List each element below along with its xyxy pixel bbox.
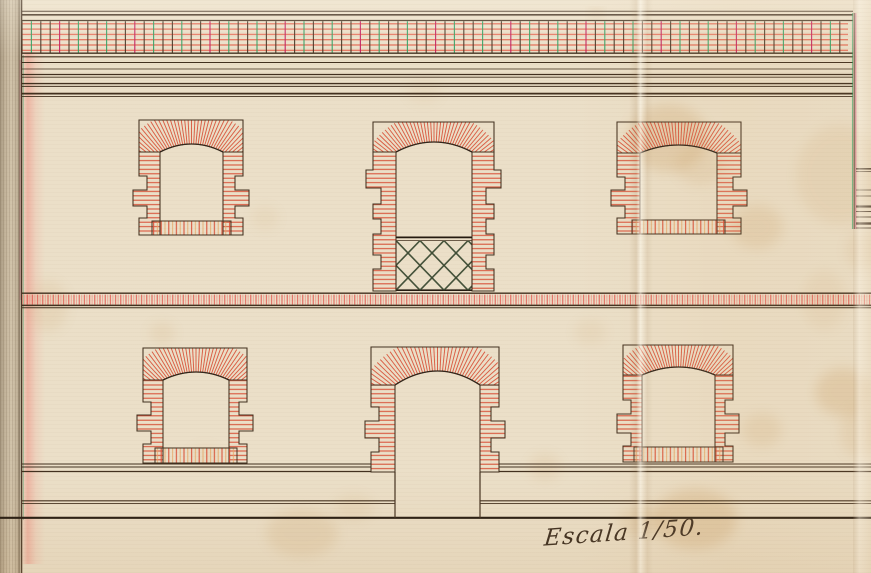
cornice [22,11,853,96]
opening-window-bottom-right [608,335,748,462]
opening-window-top-left [119,110,263,235]
opening-balcony-top-center [324,112,540,291]
opening-window-bottom-left [123,338,267,463]
scanned-elevation-sheet: Escala 1/50. [0,0,871,573]
string-course [22,293,871,308]
facade-elevation-drawing [0,0,871,573]
plinth-and-ground-lines [0,464,871,518]
opening-door-bottom-center [359,337,514,518]
